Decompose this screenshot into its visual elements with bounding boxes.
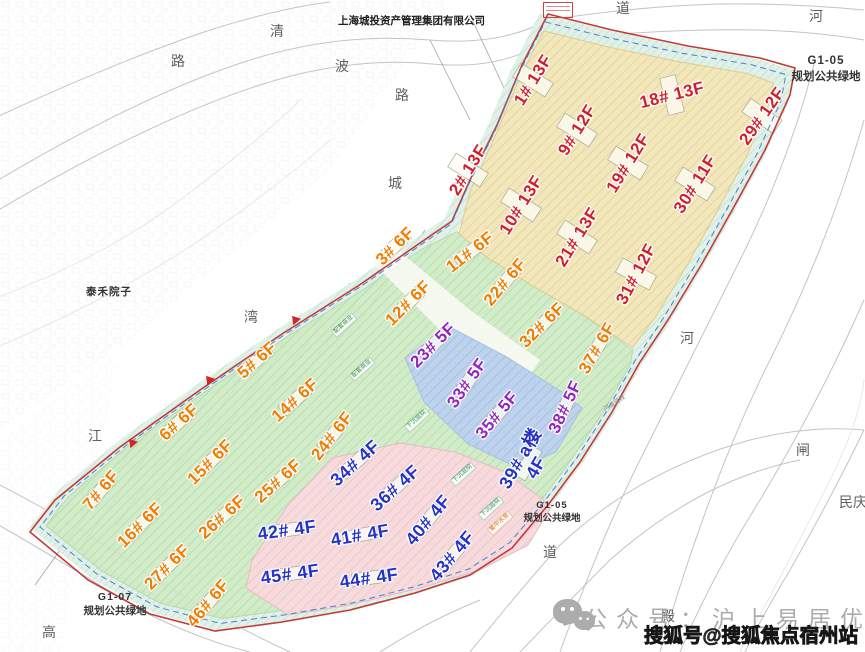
sohu-watermark: 搜狐号@搜狐焦点宿州站	[644, 619, 858, 648]
road-label: 江	[88, 426, 102, 446]
green-space-top-right: G1-05 规划公共绿地	[786, 54, 865, 85]
road-label: 波	[335, 56, 349, 76]
company-note: 上海城投资产管理集团有限公司	[338, 13, 485, 28]
road-label: 民庆	[839, 492, 865, 512]
site-plan-map: 上海城投资产管理集团有限公司 G1-05 规划公共绿地 G1-05 规划公共绿地…	[0, 0, 865, 652]
neighbor-label: 泰禾院子	[86, 284, 132, 299]
road-label: 高	[42, 622, 56, 642]
road-label: 清	[270, 21, 284, 41]
road-label: 湾	[244, 307, 258, 327]
road-label: 河	[680, 328, 694, 348]
road-label: 城	[388, 173, 402, 193]
green-space-name: 规划公共绿地	[512, 513, 592, 526]
road-label: 路	[395, 85, 409, 105]
note-box	[543, 2, 573, 18]
road-label: 道	[543, 542, 557, 562]
green-space-bottom-center: G1-05 规划公共绿地	[512, 500, 592, 526]
road-label: 道	[616, 0, 630, 18]
green-space-name: 规划公共绿地	[72, 604, 158, 618]
green-space-bottom-left: G1-07 规划公共绿地	[72, 590, 158, 618]
green-space-code: G1-05	[512, 500, 592, 513]
green-space-code: G1-05	[786, 54, 865, 70]
road-label: 闸	[796, 440, 810, 460]
site-plan-graphics	[0, 0, 865, 652]
road-label: 河	[809, 6, 823, 26]
green-space-code: G1-07	[72, 590, 158, 604]
green-space-name: 规划公共绿地	[786, 70, 865, 86]
road-label: 路	[171, 51, 185, 71]
